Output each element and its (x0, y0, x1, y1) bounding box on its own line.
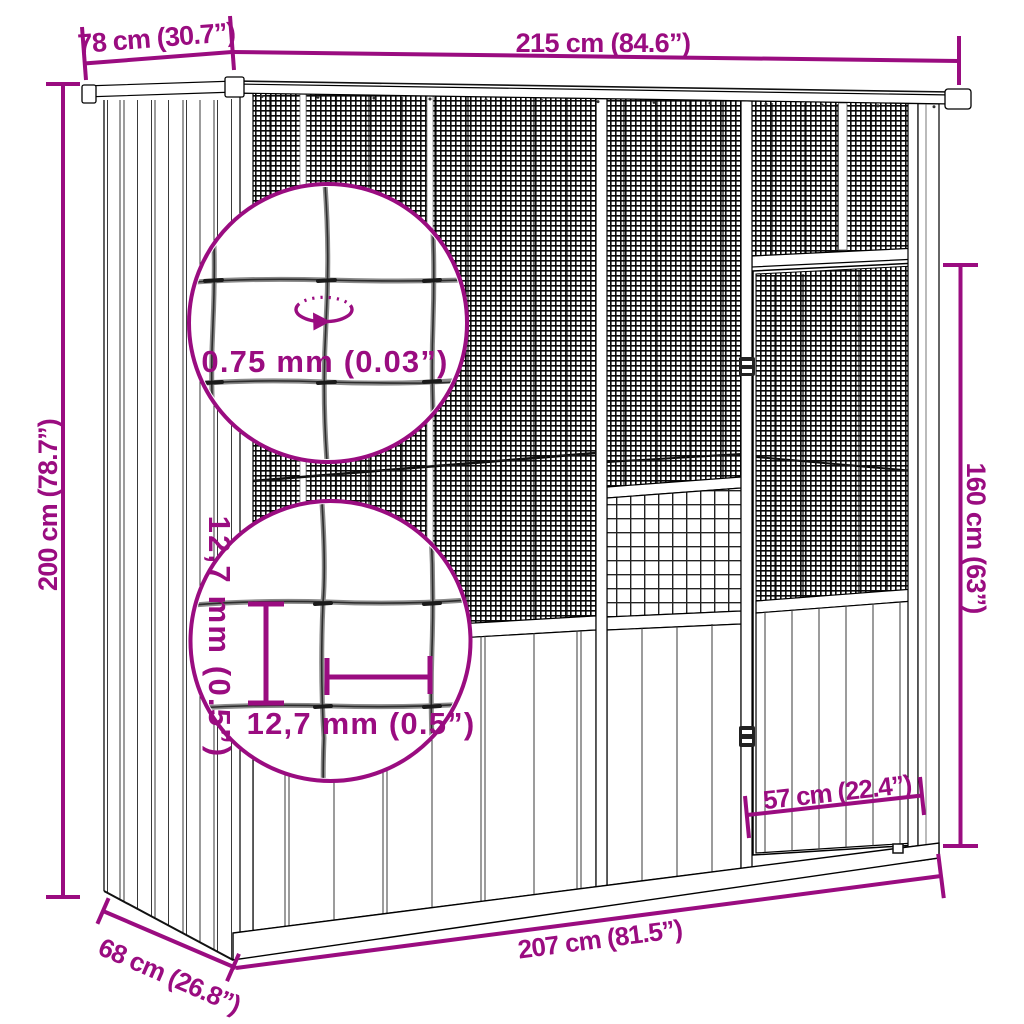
svg-text:160 cm (63”): 160 cm (63”) (961, 463, 991, 614)
svg-text:200 cm (78.7”): 200 cm (78.7”) (33, 419, 63, 591)
svg-text:215 cm (84.6”): 215 cm (84.6”) (516, 28, 691, 58)
svg-text:0.75 mm (0.03”): 0.75 mm (0.03”) (201, 344, 448, 379)
svg-text:12,7 mm (0.5”): 12,7 mm (0.5”) (202, 516, 237, 759)
svg-text:12,7 mm (0.5”): 12,7 mm (0.5”) (247, 706, 476, 741)
